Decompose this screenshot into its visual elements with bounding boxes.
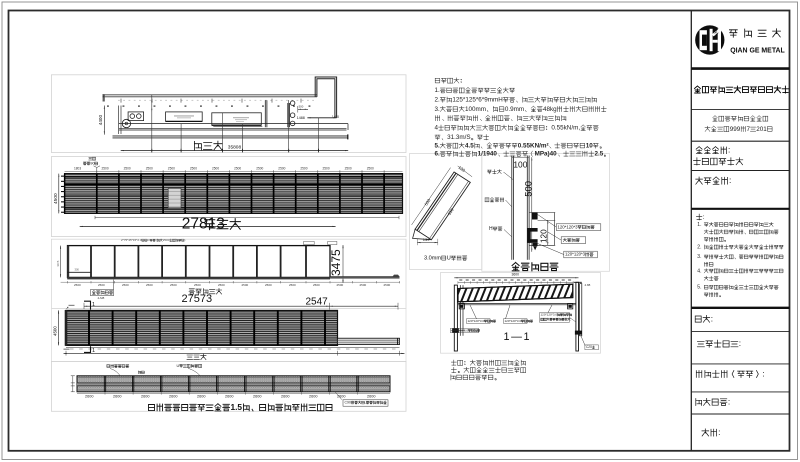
svg-text:1: 1 (92, 302, 95, 308)
svg-text:U: U (447, 256, 451, 262)
svg-text:2500: 2500 (124, 167, 131, 171)
svg-text:4: 4 (435, 125, 439, 132)
svg-text::: : (728, 146, 730, 155)
svg-text:2500: 2500 (163, 238, 170, 242)
svg-text:2500: 2500 (194, 283, 201, 287)
svg-text:2500: 2500 (337, 283, 344, 287)
svg-text:2600: 2600 (309, 394, 317, 398)
svg-text::: : (711, 314, 713, 323)
svg-text:1.: 1. (435, 87, 441, 94)
svg-text:2500: 2500 (256, 167, 263, 171)
svg-text::: : (762, 368, 764, 378)
svg-text::: : (718, 427, 720, 437)
svg-text:201: 201 (756, 126, 767, 133)
svg-text:2500: 2500 (367, 167, 374, 171)
svg-text:2600: 2600 (85, 394, 93, 398)
svg-text:2500: 2500 (102, 167, 109, 171)
svg-text:2600: 2600 (337, 394, 345, 398)
svg-text:125*125*6*9mmH: 125*125*6*9mmH (452, 97, 503, 104)
svg-text:1.: 1. (697, 222, 701, 228)
svg-text:0.55KN/m²: 0.55KN/m² (518, 142, 549, 149)
svg-text:2500: 2500 (384, 283, 391, 287)
svg-text:2600: 2600 (169, 394, 177, 398)
svg-text:120*120*3: 120*120*3 (558, 224, 579, 229)
svg-text:2.5: 2.5 (595, 151, 604, 158)
svg-text:2500: 2500 (170, 283, 177, 287)
svg-text:1488: 1488 (297, 116, 305, 120)
svg-text:QIAN GE METAL: QIAN GE METAL (730, 46, 785, 55)
svg-text:1488: 1488 (332, 115, 339, 119)
svg-text:2600: 2600 (197, 394, 205, 398)
svg-text:4500: 4500 (53, 326, 58, 336)
svg-text:2500: 2500 (313, 283, 320, 287)
svg-text:3475: 3475 (56, 260, 60, 266)
svg-text:27573: 27573 (182, 293, 213, 305)
svg-text:2*75*45*15*2.3: 2*75*45*15*2.3 (121, 238, 142, 242)
svg-text:120*120*3.0: 120*120*3.0 (505, 319, 522, 323)
svg-text:H: H (489, 226, 493, 232)
svg-text:4.88: 4.88 (585, 283, 591, 287)
svg-text:4400: 4400 (98, 115, 103, 126)
svg-text:2500: 2500 (242, 283, 249, 287)
svg-text:2500: 2500 (234, 167, 241, 171)
svg-text:120*120*3.0: 120*120*3.0 (541, 313, 558, 317)
svg-text:1—1: 1—1 (504, 331, 532, 343)
svg-text:2500: 2500 (74, 283, 81, 287)
svg-text:100mm: 100mm (465, 106, 486, 113)
svg-text:3.: 3. (435, 106, 441, 113)
svg-text:C90: C90 (345, 401, 351, 405)
svg-text:500: 500 (524, 181, 535, 197)
svg-text:0.9mm: 0.9mm (505, 106, 524, 113)
svg-text:0.55kN/m,: 0.55kN/m, (551, 125, 580, 132)
svg-text:1803: 1803 (74, 167, 81, 171)
svg-text:7: 7 (747, 126, 751, 133)
svg-text:300: 300 (75, 267, 80, 271)
svg-text:2500: 2500 (345, 167, 352, 171)
svg-text:100*100*3.0: 100*100*3.0 (452, 328, 469, 332)
svg-text:120: 120 (540, 229, 549, 243)
svg-text:31.3m/S: 31.3m/S (447, 134, 470, 141)
svg-text:3.0mm: 3.0mm (424, 256, 441, 262)
svg-text:5.: 5. (435, 142, 441, 149)
svg-text:2500: 2500 (98, 283, 105, 287)
svg-text:2600: 2600 (141, 394, 149, 398)
svg-text:): ) (184, 238, 185, 242)
svg-text::: : (739, 338, 741, 348)
svg-text:,: , (365, 401, 366, 405)
svg-text:MPa)40: MPa)40 (535, 151, 558, 158)
svg-text:999: 999 (730, 126, 741, 133)
svg-text:139: 139 (423, 237, 430, 242)
svg-text:35808: 35808 (228, 144, 242, 150)
svg-text:2500: 2500 (265, 283, 272, 287)
svg-text:2500: 2500 (360, 283, 367, 287)
svg-text:2600: 2600 (113, 394, 121, 398)
svg-text:2500: 2500 (122, 283, 129, 287)
svg-text:2500: 2500 (278, 167, 285, 171)
svg-text:3.: 3. (697, 254, 701, 260)
svg-text:(: ( (156, 238, 157, 242)
svg-text::: : (729, 175, 731, 185)
svg-text:2500: 2500 (300, 167, 307, 171)
svg-text:2500: 2500 (168, 167, 175, 171)
svg-text:120*120*3: 120*120*3 (565, 252, 586, 257)
svg-text:2500: 2500 (289, 283, 296, 287)
svg-text:3475: 3475 (329, 249, 343, 276)
svg-text::: : (728, 396, 730, 406)
svg-text:1.5: 1.5 (231, 402, 243, 412)
svg-text:120*120*3.0: 120*120*3.0 (468, 319, 485, 323)
svg-text:1/1940: 1/1940 (478, 151, 498, 158)
svg-text:5.: 5. (697, 285, 701, 291)
svg-text:10: 10 (586, 142, 594, 149)
svg-text:2500: 2500 (212, 167, 219, 171)
svg-text:2500: 2500 (218, 283, 225, 287)
svg-text::: : (703, 214, 705, 221)
svg-text:48kg: 48kg (543, 106, 557, 113)
svg-text:C20: C20 (586, 345, 592, 349)
svg-text:6.: 6. (435, 151, 441, 158)
svg-text:4.: 4. (697, 268, 701, 274)
svg-text:4-M8: 4-M8 (98, 296, 105, 300)
svg-text:3600: 3600 (512, 273, 520, 277)
svg-text:500: 500 (299, 104, 304, 108)
svg-text:2.: 2. (697, 244, 701, 250)
svg-text:90: 90 (90, 162, 94, 166)
svg-text:2600: 2600 (367, 394, 375, 398)
svg-text:2600: 2600 (281, 394, 289, 398)
svg-text:2500: 2500 (190, 167, 197, 171)
svg-text:2500: 2500 (146, 283, 153, 287)
svg-text:U: U (177, 364, 180, 368)
svg-text:2.: 2. (435, 97, 441, 104)
svg-text:4.5: 4.5 (465, 142, 474, 149)
svg-text:2500: 2500 (323, 167, 330, 171)
svg-text:2600: 2600 (253, 394, 261, 398)
svg-text:2500: 2500 (146, 167, 153, 171)
svg-text:2600: 2600 (225, 394, 233, 398)
svg-text:4500: 4500 (53, 193, 59, 204)
svg-text:100: 100 (513, 160, 527, 170)
